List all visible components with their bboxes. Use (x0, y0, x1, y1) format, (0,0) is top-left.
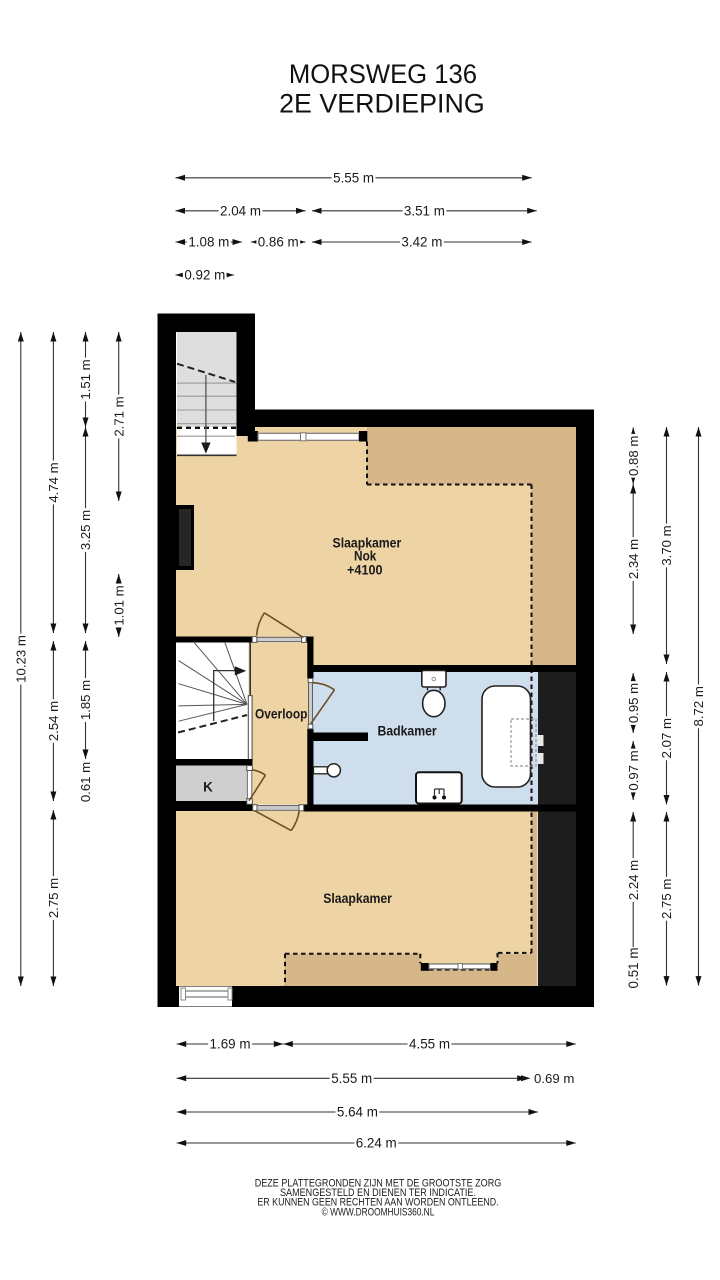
svg-text:0.92 m: 0.92 m (184, 268, 225, 283)
svg-text:2.04 m: 2.04 m (220, 204, 261, 219)
svg-text:2.07 m: 2.07 m (659, 718, 674, 758)
svg-text:0.86 m: 0.86 m (258, 235, 299, 250)
svg-text:0.51 m: 0.51 m (626, 948, 641, 989)
svg-text:K: K (203, 780, 213, 795)
svg-text:1.69 m: 1.69 m (210, 1037, 251, 1052)
svg-text:2.75 m: 2.75 m (659, 879, 674, 919)
svg-text:2E VERDIEPING: 2E VERDIEPING (279, 89, 485, 119)
svg-text:5.55 m: 5.55 m (331, 1071, 372, 1086)
svg-text:1.51 m: 1.51 m (78, 359, 93, 399)
svg-text:2.54 m: 2.54 m (46, 701, 61, 741)
svg-text:5.64 m: 5.64 m (337, 1105, 378, 1120)
svg-text:0.88 m: 0.88 m (626, 436, 641, 476)
svg-text:0.97 m: 0.97 m (626, 750, 641, 790)
svg-text:6.24 m: 6.24 m (356, 1136, 397, 1151)
svg-text:Badkamer: Badkamer (378, 723, 438, 738)
svg-text:MORSWEG 136: MORSWEG 136 (289, 59, 477, 89)
svg-text:+4100: +4100 (347, 562, 383, 577)
svg-text:2.24 m: 2.24 m (626, 860, 641, 900)
svg-text:2.75 m: 2.75 m (46, 878, 61, 918)
svg-text:0.95 m: 0.95 m (626, 683, 641, 723)
svg-text:0.61 m: 0.61 m (78, 762, 93, 802)
svg-text:Nok: Nok (354, 549, 377, 564)
svg-text:1.08 m: 1.08 m (188, 235, 229, 250)
svg-text:© WWW.DROOMHUIS360.NL: © WWW.DROOMHUIS360.NL (322, 1206, 435, 1218)
svg-text:3.25 m: 3.25 m (78, 510, 93, 550)
svg-text:1.01 m: 1.01 m (111, 585, 126, 625)
svg-text:3.51 m: 3.51 m (404, 204, 445, 219)
svg-text:3.70 m: 3.70 m (659, 525, 674, 565)
svg-text:8.72 m: 8.72 m (691, 686, 706, 726)
svg-text:Slaapkamer: Slaapkamer (323, 891, 392, 906)
svg-text:0.69 m: 0.69 m (534, 1071, 574, 1086)
svg-text:2.71 m: 2.71 m (111, 396, 126, 436)
svg-text:4.55 m: 4.55 m (409, 1037, 450, 1052)
svg-text:Overloop: Overloop (255, 706, 307, 721)
svg-text:3.42 m: 3.42 m (401, 235, 442, 250)
svg-text:2.34 m: 2.34 m (626, 539, 641, 579)
svg-text:5.55 m: 5.55 m (333, 171, 374, 186)
svg-text:4.74 m: 4.74 m (46, 462, 61, 502)
svg-text:10.23 m: 10.23 m (14, 635, 29, 683)
svg-text:1.85 m: 1.85 m (78, 680, 93, 720)
